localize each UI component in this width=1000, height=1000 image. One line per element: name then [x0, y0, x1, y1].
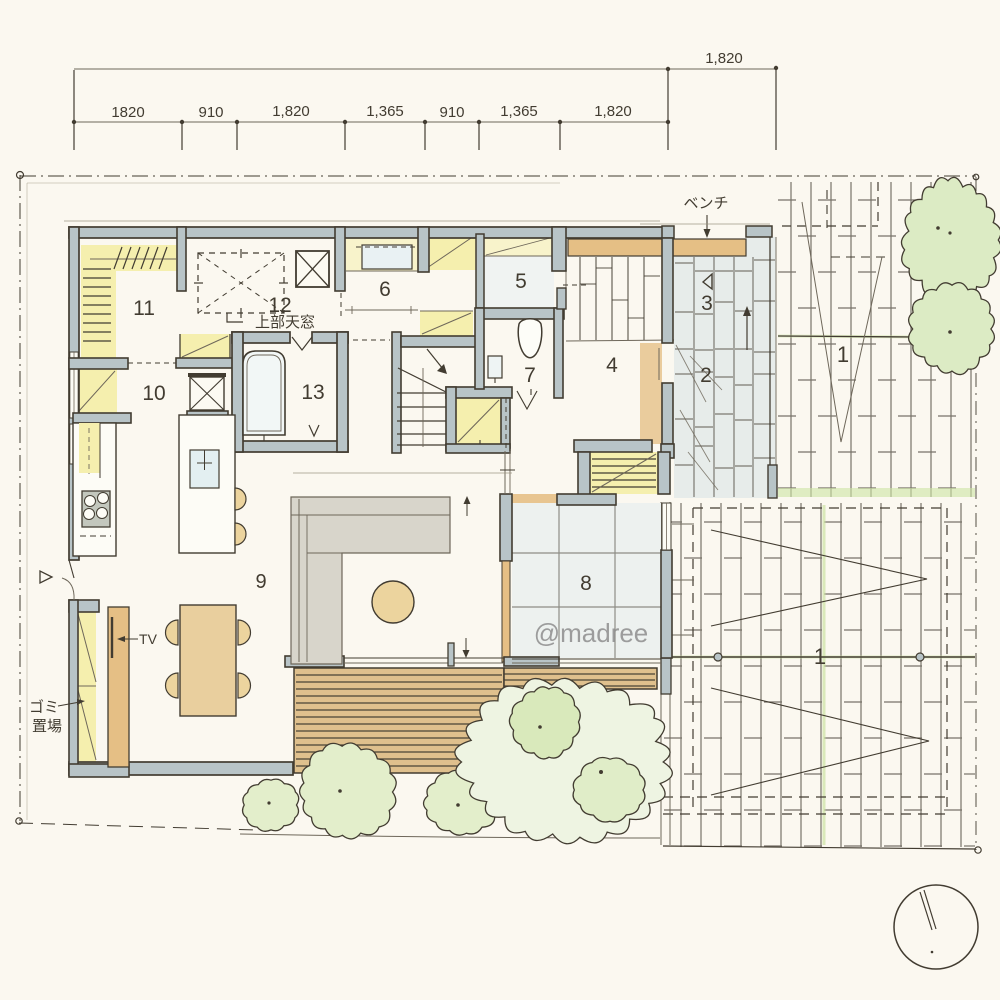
- svg-text:4: 4: [606, 354, 618, 377]
- svg-text:1: 1: [837, 342, 849, 367]
- svg-text:1,820: 1,820: [594, 103, 632, 120]
- svg-text:910: 910: [198, 104, 223, 121]
- svg-text:910: 910: [439, 104, 464, 121]
- svg-text:13: 13: [301, 381, 324, 404]
- svg-text:1,820: 1,820: [272, 103, 310, 120]
- svg-text:2: 2: [700, 364, 712, 387]
- svg-text:10: 10: [142, 382, 165, 405]
- svg-text:1: 1: [814, 644, 826, 669]
- svg-text:ゴミ: ゴミ: [29, 698, 59, 716]
- svg-text:6: 6: [379, 278, 391, 301]
- svg-text:7: 7: [524, 364, 536, 387]
- svg-text:@madree: @madree: [534, 618, 649, 648]
- svg-text:1820: 1820: [111, 104, 144, 121]
- svg-text:ベンチ: ベンチ: [683, 195, 728, 212]
- svg-text:11: 11: [133, 297, 155, 320]
- svg-text:1,365: 1,365: [366, 103, 404, 120]
- svg-text:置場: 置場: [32, 718, 62, 735]
- svg-text:9: 9: [255, 571, 266, 593]
- svg-text:12: 12: [268, 294, 291, 317]
- svg-text:1,820: 1,820: [705, 50, 743, 67]
- svg-text:3: 3: [701, 292, 713, 315]
- svg-text:TV: TV: [139, 631, 158, 647]
- svg-text:8: 8: [580, 572, 592, 595]
- svg-text:1,365: 1,365: [500, 103, 538, 120]
- svg-text:5: 5: [515, 270, 527, 293]
